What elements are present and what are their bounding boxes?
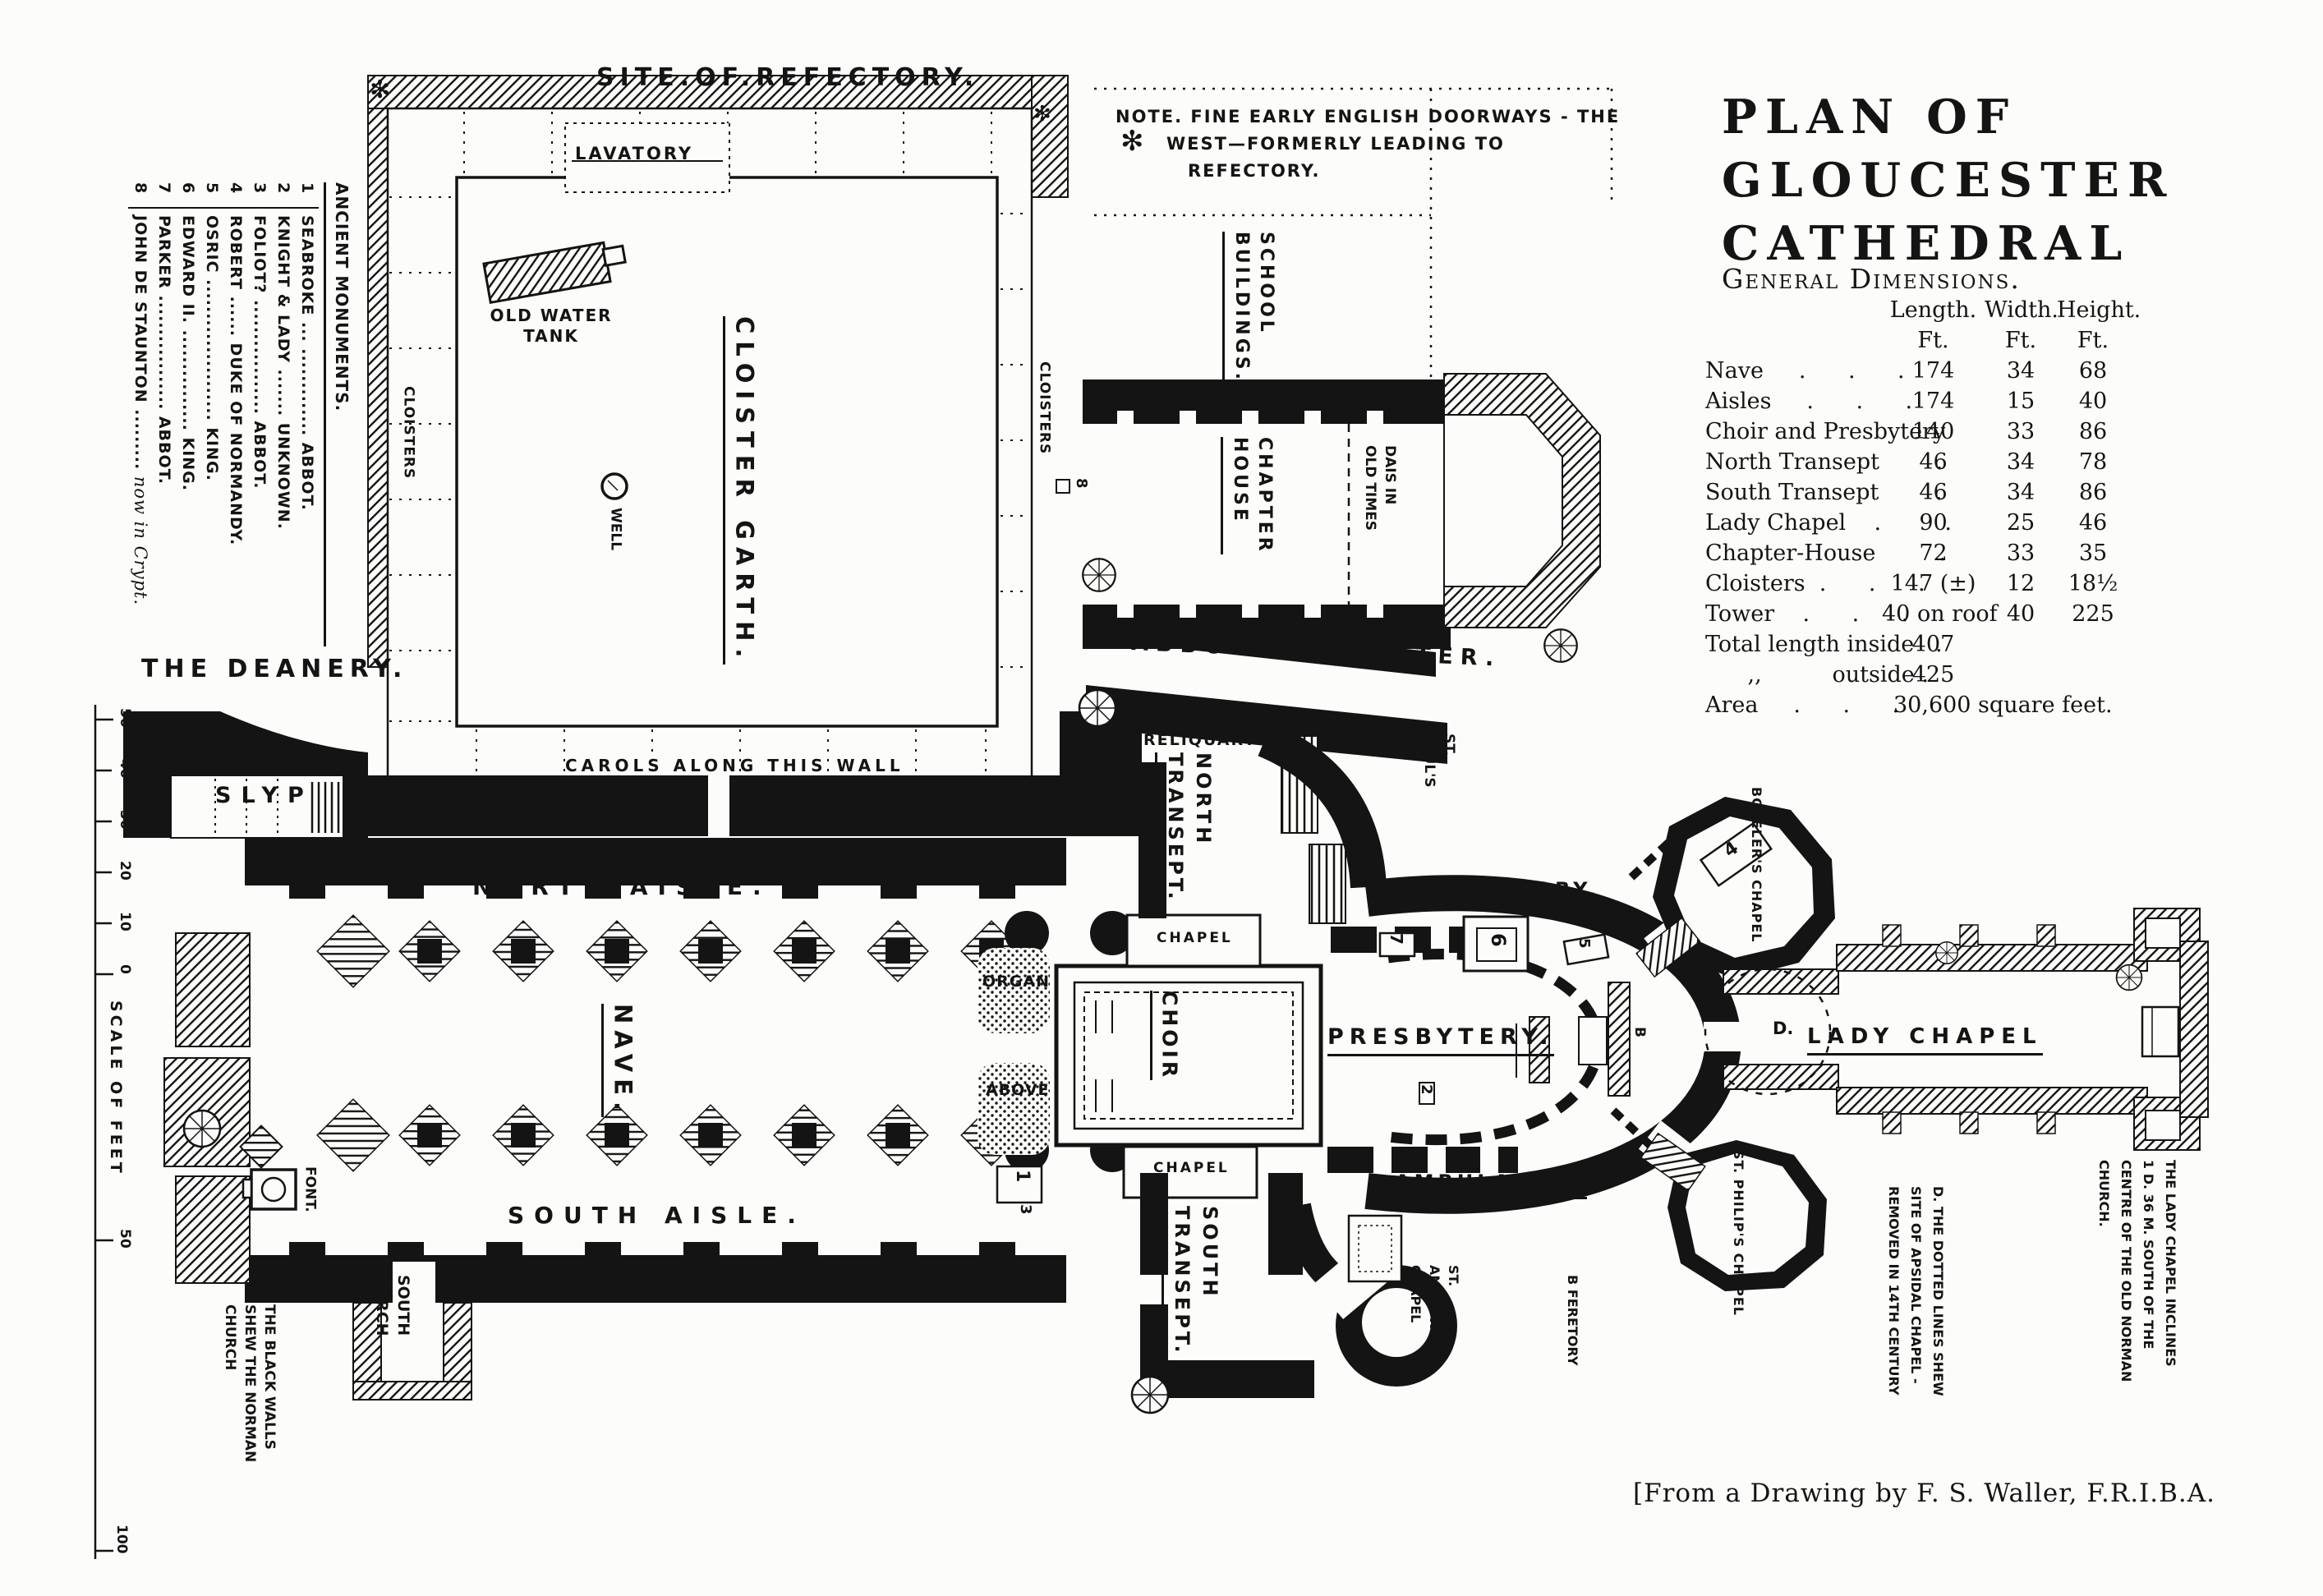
scale-tick-40: 40 <box>117 759 133 779</box>
feretory-b-marker: B <box>1631 1027 1648 1037</box>
cloister-garth-label: CLOISTER GARTH. <box>723 316 759 665</box>
page-title: PLAN OF GLOUCESTER CATHEDRAL <box>1722 85 2174 275</box>
well-label: WELL <box>606 508 623 550</box>
list-item: 7PARKER ................. ABBOT. <box>152 182 176 646</box>
table-row: Cloisters . . .147 (±)1218½ <box>1705 571 2129 601</box>
ancient-monuments-list: ANCIENT MONUMENTS. 1SEABROKE ... .......… <box>128 182 353 646</box>
ambulatory-north-label: AMBULATORY, <box>1400 877 1600 907</box>
monument-marker-7: 7 <box>1387 933 1406 945</box>
north-aisle-label: NORTH AISLE. <box>472 872 771 901</box>
presbytery-label: PRESBYTERY. <box>1327 1023 1554 1056</box>
lady-chapel-label: LADY CHAPEL <box>1807 1023 2043 1056</box>
dais-label: DAIS IN OLD TIMES <box>1360 445 1400 531</box>
font-drawing <box>243 1170 296 1209</box>
table-row: Choir and Presbytery1403386 <box>1705 419 2129 449</box>
st-philips-chapel-label: ST. PHILIP'S CHAPEL <box>1730 1150 1746 1316</box>
monument-marker-1: 1 <box>1012 1170 1033 1182</box>
st-pauls-church-label: ST. PAUL'S CH. <box>1400 734 1459 788</box>
deanery-slyp <box>123 711 368 838</box>
cloister-complex <box>368 76 1069 836</box>
scale-tick-50b: 50 <box>117 1229 133 1249</box>
south-aisle-label: SOUTH AISLE. <box>508 1201 806 1230</box>
dimensions-table: Length. Width. Height. Ft. Ft. Ft. Nave … <box>1705 297 2129 723</box>
choir-label: CHOIR <box>1150 991 1182 1080</box>
title-line-2: GLOUCESTER <box>1722 149 2174 212</box>
monument-marker-5: 5 <box>1575 938 1593 949</box>
slyp-label: SLYP <box>215 782 314 810</box>
table-row: Nave . . .1743468 <box>1705 358 2129 389</box>
attribution-credit: [From a Drawing by F. S. Waller, F.R.I.B… <box>1633 1479 2215 1508</box>
scale-tick-30: 30 <box>117 810 133 830</box>
table-row: South Transept .463486 <box>1705 480 2129 510</box>
lady-chapel-incline-note: THE LADY CHAPEL INCLINES 1 D. 36 M. SOUT… <box>2093 1160 2182 1382</box>
flower-ornament-icon: ✻ <box>370 76 390 104</box>
above-label: ABOVE <box>986 1081 1050 1101</box>
monument-marker-6: 6 <box>1487 933 1510 947</box>
col-header-length: Length. <box>1882 297 1985 323</box>
nave-label: NAVE. <box>601 1004 637 1117</box>
monument-marker-2: 2 <box>1418 1084 1435 1095</box>
north-transept-label: NORTH TRANSEPT. <box>1155 752 1217 903</box>
chapter-house-label: CHAPTER HOUSE <box>1221 437 1276 554</box>
title-line-1: PLAN OF <box>1722 85 2174 149</box>
table-row: Area . . .30,600 square feet. <box>1705 692 2129 723</box>
botelers-chapel-label: BOTELER'S CHAPEL <box>1748 787 1764 942</box>
black-walls-note: THE BLACK WALLS SHEW THE NORMAN CHURCH <box>220 1304 279 1462</box>
scale-of-feet-label: SCALE OF FEET <box>105 1000 125 1176</box>
chapel-south-label: CHAPEL <box>1153 1160 1230 1177</box>
old-water-tank-label: OLD WATER TANK <box>490 306 613 347</box>
refectory-doorways-note: NOTE. FINE EARLY ENGLISH DOORWAYS - THE … <box>1115 103 1620 185</box>
chapel-north-label: CHAPEL <box>1157 930 1233 947</box>
cloisters-east-label: CLOISTERS <box>1035 361 1052 454</box>
site-of-refectory-label: SITE.OF.REFECTORY. <box>596 62 979 94</box>
list-item: 5OSRIC ..................... KING. <box>200 182 223 646</box>
flower-ornament-icon: ✻ <box>1033 102 1051 126</box>
school-buildings-label: SCHOOL BUILDINGS. <box>1222 232 1278 383</box>
monuments-heading: ANCIENT MONUMENTS. <box>324 182 353 646</box>
dimensions-heading: General Dimensions. <box>1722 263 2021 295</box>
table-row: Total length inside .407 <box>1705 632 2129 662</box>
chapter-house-walls <box>1083 374 1600 662</box>
scale-tick-100: 100 <box>113 1525 130 1554</box>
list-item: 1SEABROKE ... ............. ABBOT. <box>295 182 319 646</box>
list-item: 8JOHN DE STAUNTON ......... now in Crypt… <box>128 182 152 646</box>
table-row: Lady Chapel . .902546 <box>1705 510 2129 540</box>
list-item: 3FOLIOT? ................. ABBOT. <box>247 182 271 646</box>
nave-piers <box>317 915 1022 1171</box>
cloisters-west-label: CLOISTERS <box>399 386 416 479</box>
botelers-chapel-walls <box>1636 797 1835 979</box>
table-row: ,, outside .425 <box>1705 662 2129 692</box>
table-header-row: Length. Width. Height. <box>1705 297 2129 328</box>
col-header-width: Width. <box>1985 297 2057 323</box>
the-deanery-label: THE DEANERY. <box>141 654 407 685</box>
list-item: 4ROBERT ...... DUKE OF NORMANDY. <box>223 182 247 646</box>
col-header-height: Height. <box>2057 297 2129 323</box>
table-row: Tower . . .40 on roof40225 <box>1705 601 2129 632</box>
south-transept-label: SOUTH TRANSEPT. <box>1161 1206 1224 1356</box>
table-row: North Transept .463478 <box>1705 449 2129 480</box>
list-item: 6EDWARD II. ............... KING. <box>176 182 200 646</box>
south-porch-label: SOUTH PORCH <box>371 1275 414 1336</box>
scale-tick-20: 20 <box>117 861 133 881</box>
organ-label: ORGAN <box>982 973 1050 992</box>
reliquary-label: RELIQUARY <box>1143 731 1257 751</box>
scale-tick-10: 10 <box>117 912 133 931</box>
table-unit-row: Ft. Ft. Ft. <box>1705 328 2129 358</box>
lavatory-label: LAVATORY <box>575 143 693 164</box>
crossing-and-choir <box>977 911 1321 1203</box>
table-row: Chapter-House .723335 <box>1705 540 2129 571</box>
scale-tick-0: 0 <box>117 964 133 974</box>
carols-label: CAROLS ALONG THIS WALL <box>565 756 904 776</box>
monument-marker-8: 8 <box>1073 478 1090 489</box>
list-item: 2KNIGHT & LADY ....... UNKNOWN. <box>271 182 295 646</box>
dotted-lines-note: D. THE DOTTED LINES SHEW SITE OF APSIDAL… <box>1883 1186 1949 1396</box>
plan-of-gloucester-cathedral-page: PLAN OF GLOUCESTER CATHEDRAL General Dim… <box>0 0 2323 1596</box>
st-andrews-chapel-label: ST. ANDREW'S CHAPEL <box>1406 1265 1463 1344</box>
ambulatory-south-label: AMBULATORY <box>1395 1170 1587 1199</box>
font-label: FONT. <box>301 1166 318 1212</box>
feretory-label: B FERETORY <box>1564 1275 1580 1365</box>
scale-tick-50: 50 <box>117 708 133 728</box>
apsidal-chapel-d-marker: D. <box>1773 1019 1793 1038</box>
monument-marker-3: 3 <box>1017 1204 1034 1215</box>
table-row: Aisles . . .1741540 <box>1705 389 2129 419</box>
well-drawing <box>602 474 627 499</box>
